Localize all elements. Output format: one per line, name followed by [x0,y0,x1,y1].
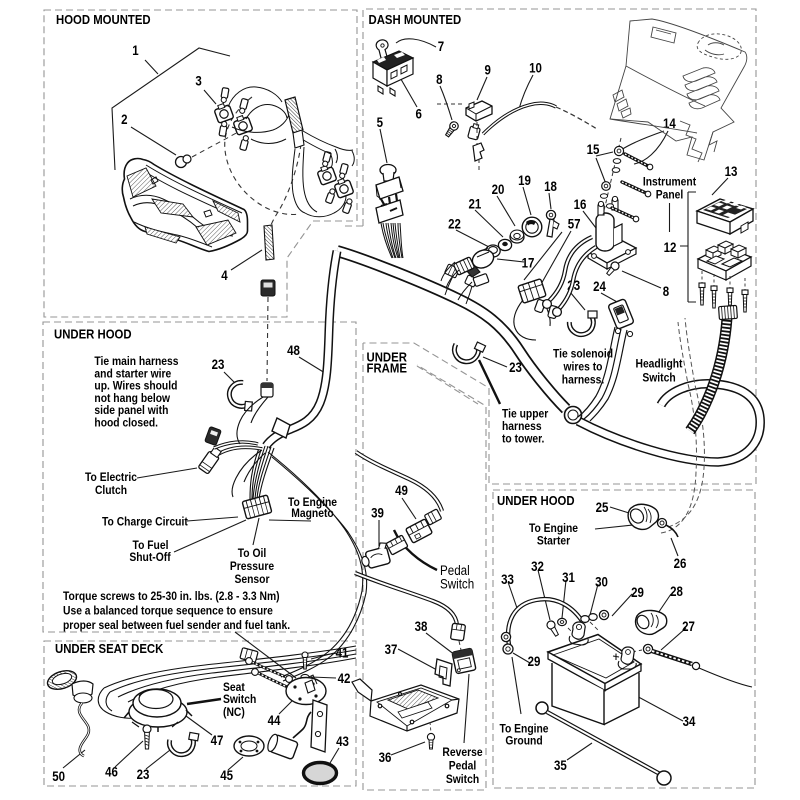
svg-text:12: 12 [664,240,677,255]
svg-text:48: 48 [287,343,300,358]
svg-text:UNDER HOOD: UNDER HOOD [497,493,575,508]
svg-text:Switch: Switch [642,371,675,385]
svg-text:39: 39 [371,506,384,521]
svg-text:Headlight: Headlight [636,357,683,371]
svg-text:Panel: Panel [656,188,684,202]
svg-text:30: 30 [595,575,608,590]
svg-text:To Electric: To Electric [85,470,137,484]
svg-text:wires to: wires to [563,360,603,374]
svg-text:38: 38 [415,619,428,634]
svg-text:Shut-Off: Shut-Off [129,550,171,564]
svg-text:UNDER HOOD: UNDER HOOD [54,327,132,342]
svg-text:Use a balanced torque sequence: Use a balanced torque sequence to ensure [63,604,273,618]
svg-text:32: 32 [531,559,544,574]
svg-text:29: 29 [528,654,541,669]
svg-text:5: 5 [377,115,384,130]
svg-text:Pedal: Pedal [449,759,477,773]
svg-text:Switch: Switch [440,577,474,592]
svg-text:to tower.: to tower. [502,432,544,446]
svg-text:FRAME: FRAME [367,360,408,375]
svg-text:Tie solenoid: Tie solenoid [553,347,613,361]
svg-text:HOOD MOUNTED: HOOD MOUNTED [56,12,151,27]
svg-text:24: 24 [593,279,606,294]
svg-text:9: 9 [485,63,491,78]
svg-text:17: 17 [522,256,535,271]
svg-text:UNDER SEAT DECK: UNDER SEAT DECK [55,641,164,656]
svg-text:27: 27 [682,619,695,634]
svg-text:Torque screws to 25-30 in. lbs: Torque screws to 25-30 in. lbs. (2.8 - 3… [63,589,280,603]
svg-text:22: 22 [448,217,461,232]
svg-text:2: 2 [121,112,127,127]
svg-text:Sensor: Sensor [235,572,270,586]
svg-text:Switch: Switch [446,772,479,786]
svg-text:7: 7 [438,39,444,54]
svg-text:Starter: Starter [537,534,571,548]
svg-text:hood closed.: hood closed. [94,416,158,430]
svg-text:19: 19 [518,173,531,188]
svg-text:3: 3 [195,74,201,89]
svg-text:57: 57 [568,217,581,232]
svg-text:(NC): (NC) [223,705,245,719]
svg-text:13: 13 [725,164,738,179]
svg-text:31: 31 [562,570,575,585]
svg-text:23: 23 [137,767,150,782]
svg-text:Ground: Ground [505,734,542,748]
svg-text:42: 42 [338,671,351,686]
svg-text:4: 4 [221,268,228,283]
svg-text:21: 21 [469,197,482,212]
svg-text:43: 43 [336,734,349,749]
svg-text:proper seal between fuel sende: proper seal between fuel sender and fuel… [63,618,290,632]
svg-text:8: 8 [436,72,443,87]
svg-text:Instrument: Instrument [643,175,696,189]
svg-text:49: 49 [395,483,408,498]
svg-text:Pressure: Pressure [230,559,274,573]
svg-text:10: 10 [529,61,542,76]
svg-text:47: 47 [211,733,224,748]
svg-text:To Oil: To Oil [238,546,267,560]
svg-text:25: 25 [596,500,609,515]
svg-text:Clutch: Clutch [95,483,127,497]
svg-text:35: 35 [554,758,567,773]
svg-text:To Charge Circuit: To Charge Circuit [102,515,188,529]
svg-text:36: 36 [379,750,392,765]
svg-text:15: 15 [587,142,600,157]
svg-text:45: 45 [220,768,233,783]
svg-text:Reverse: Reverse [442,745,482,759]
svg-text:26: 26 [674,556,687,571]
svg-text:46: 46 [105,765,118,780]
svg-text:Switch: Switch [223,692,256,706]
svg-text:18: 18 [544,179,557,194]
svg-text:29: 29 [631,585,644,600]
svg-text:44: 44 [268,713,281,728]
svg-text:8: 8 [663,284,670,299]
svg-text:20: 20 [492,182,505,197]
svg-text:28: 28 [670,584,683,599]
svg-text:34: 34 [683,714,696,729]
svg-text:16: 16 [574,197,587,212]
svg-text:33: 33 [501,572,514,587]
svg-text:37: 37 [385,642,398,657]
svg-text:harness.: harness. [562,373,604,387]
svg-text:50: 50 [52,769,65,784]
svg-text:1: 1 [132,43,139,58]
svg-text:23: 23 [212,357,225,372]
svg-text:6: 6 [416,107,422,122]
svg-text:DASH MOUNTED: DASH MOUNTED [369,12,462,27]
